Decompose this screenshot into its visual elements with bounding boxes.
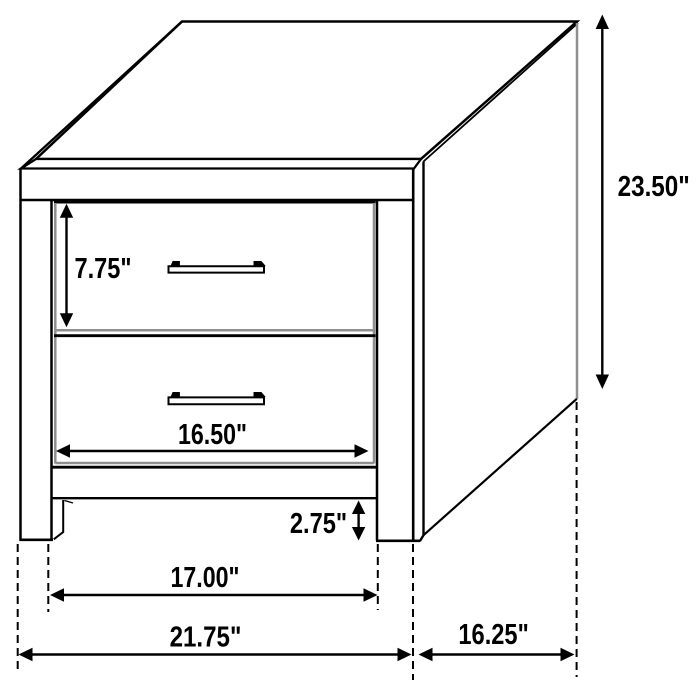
svg-text:17.00": 17.00" bbox=[171, 562, 240, 594]
svg-text:16.25": 16.25" bbox=[458, 619, 528, 651]
svg-text:16.50": 16.50" bbox=[178, 419, 247, 451]
svg-text:23.50": 23.50" bbox=[618, 171, 690, 203]
svg-text:21.75": 21.75" bbox=[170, 621, 242, 653]
svg-text:2.75": 2.75" bbox=[290, 508, 347, 540]
svg-text:7.75": 7.75" bbox=[75, 253, 132, 285]
